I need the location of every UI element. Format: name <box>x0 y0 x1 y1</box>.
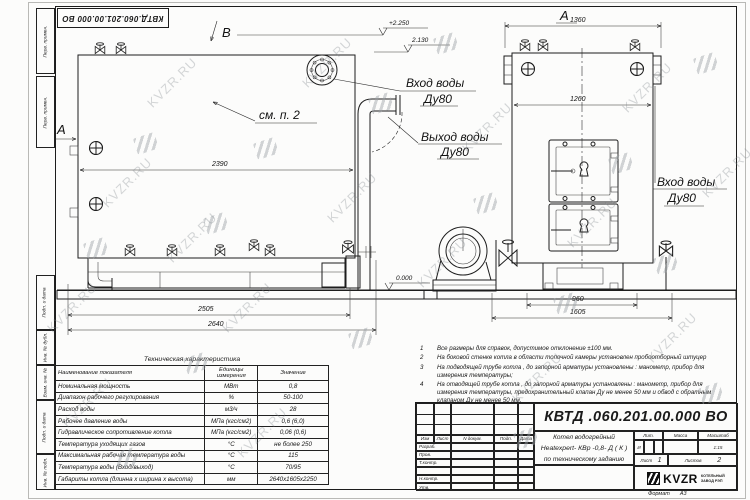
tb-header-list: Лист <box>434 435 451 443</box>
side-inlet-water-dn: Ду80 <box>666 191 696 205</box>
format-note: ФорматА3 <box>648 491 687 497</box>
note-item: 1Все размеры для справок, допустимое отк… <box>420 345 734 353</box>
spec-header-row: Наименование показателя Единицы измерени… <box>56 366 329 381</box>
keyhole-icon <box>580 219 588 232</box>
datum-mark <box>522 63 535 76</box>
valve-icon <box>520 40 530 51</box>
spec-row: Расход водым3/ч28 <box>56 404 329 416</box>
dim-1360: 1360 <box>570 17 586 24</box>
technical-characteristics: Техническая характеристика Наименование … <box>55 356 329 485</box>
inlet-water-dn: Ду80 <box>422 92 452 106</box>
spec-header-units: Единицы измерения <box>205 366 258 381</box>
tb-sheets-cell: Листов2 <box>668 454 738 466</box>
spec-row: Гидравлическое сопротивление котлаМПа (к… <box>56 427 329 439</box>
boiler-base <box>88 256 360 290</box>
spec-table-title: Техническая характеристика <box>55 356 329 363</box>
manufacturer-logo: KVZR КОТЕЛЬНЫЙ ЗАВОД РЭП <box>634 466 738 491</box>
outlet-water-dn: Ду80 <box>439 145 469 159</box>
outlet-pipe <box>358 95 402 290</box>
front-view <box>57 43 437 299</box>
valve-icon <box>538 40 548 51</box>
drain-valve-icon <box>265 245 275 256</box>
spec-row: Температура воды (Вход/выход)°С70/95 <box>56 462 329 474</box>
kvzr-logo-icon <box>647 472 660 485</box>
spec-header-value: Значение <box>258 366 329 381</box>
tb-lit-value: И <box>634 440 644 454</box>
spec-table: Наименование показателя Единицы измерени… <box>55 365 329 485</box>
tb-header-podp: Подп. <box>494 435 518 443</box>
spec-row: Рабочее давление водыМПа (кгс/см2)0,6 (6… <box>56 415 329 427</box>
kvzr-logo-text: KVZR <box>663 472 698 486</box>
spec-header-name: Наименование показателя <box>56 366 205 381</box>
drain-valve-icon <box>343 241 354 253</box>
tb-lit-label: Лит. <box>634 431 663 440</box>
tb-header-ndoc: N докум. <box>451 435 494 443</box>
tb-row-prov: Пров. <box>416 451 451 459</box>
tb-mass-value <box>663 440 698 454</box>
valve-icon <box>95 43 105 54</box>
spec-row: Диапазон рабочего регулирования%50-100 <box>56 392 329 404</box>
elevation-2250: +2.250 <box>389 20 409 27</box>
outlet-water-label: Выход воды <box>421 130 489 144</box>
spec-row: Габариты котла (длинна х ширина х высота… <box>56 473 329 485</box>
view-a-label: А <box>559 8 569 23</box>
datum-mark <box>631 63 644 76</box>
blower-fan <box>433 227 496 291</box>
elevation-2130: 2.130 <box>411 37 429 44</box>
tb-row-nkontr: Н.контр. <box>416 475 451 483</box>
drawing-sheet: Перв. примен. Перв. примен. Подп. и дата… <box>0 0 750 500</box>
tb-scale-label: Масштаб <box>698 431 738 440</box>
datum-mark <box>90 142 103 155</box>
drain-valve-icon <box>125 245 135 256</box>
note-item: 3На подводящей трубе котла , до запорной… <box>420 364 734 380</box>
dim-2640: 2640 <box>207 321 224 328</box>
inlet-water-label: Вход воды <box>406 76 464 90</box>
tb-row-tkontr: Т.контр. <box>416 459 451 467</box>
valve-icon <box>630 40 640 51</box>
kvzr-logo-subtext: КОТЕЛЬНЫЙ ЗАВОД РЭП <box>701 474 725 482</box>
inlet-flange <box>307 55 337 85</box>
tb-row-utv: Утв. <box>416 483 451 491</box>
keyhole-icon <box>580 162 588 176</box>
doc-number: КВТД .060.201.00.000 ВО <box>544 409 728 425</box>
dim-2505: 2505 <box>197 306 214 313</box>
product-name-cell: Котел водогрейный Heatexpert- КВр -0,8- … <box>534 431 634 465</box>
spec-row: Номинальная мощностьМВт0,8 <box>56 381 329 393</box>
lower-furnace-door <box>549 204 618 251</box>
side-drain-valve-icon <box>659 241 672 256</box>
tb-row-razrab: Разраб. <box>416 443 451 451</box>
tb-scale-value: 1:15 <box>698 440 738 454</box>
spec-row: Температура уходящих газов°Сне более 250 <box>56 438 329 450</box>
note-item: 2На боковой стенке котла в области топоч… <box>420 354 734 362</box>
drain-valve-icon <box>215 245 225 256</box>
see-note-label: см. п. 2 <box>259 108 300 122</box>
datum-mark <box>90 198 103 211</box>
valve-icon <box>116 43 126 54</box>
tb-header-izm: Изм <box>416 435 434 443</box>
tb-mass-label: Масса <box>663 431 698 440</box>
section-marker-a: A <box>56 122 66 137</box>
dim-1605: 1605 <box>570 309 586 316</box>
spec-row: Максимальная рабочая температура воды°С1… <box>56 450 329 462</box>
elevation-0000: 0.000 <box>396 275 413 282</box>
drain-valve-icon <box>249 240 259 251</box>
side-view: А <box>424 8 736 299</box>
drain-valve-icon <box>167 245 177 256</box>
drawing-notes: 1Все размеры для справок, допустимое отк… <box>420 345 734 406</box>
upper-furnace-door <box>549 140 618 202</box>
section-marker-b: B <box>222 25 231 40</box>
side-inlet-water-label: Вход воды <box>657 175 715 189</box>
side-base <box>543 263 623 289</box>
tb-header-data: Дата <box>518 435 534 443</box>
burner-valve <box>496 240 517 290</box>
ground-hatch <box>57 291 437 300</box>
dim-960: 960 <box>572 296 584 303</box>
dim-1260: 1260 <box>570 96 586 103</box>
dim-2390: 2390 <box>211 161 228 168</box>
tb-sheet-cell: Лист1 <box>634 454 668 466</box>
title-block: Изм Лист N докум. Подп. Дата Разраб. Про… <box>415 402 737 490</box>
